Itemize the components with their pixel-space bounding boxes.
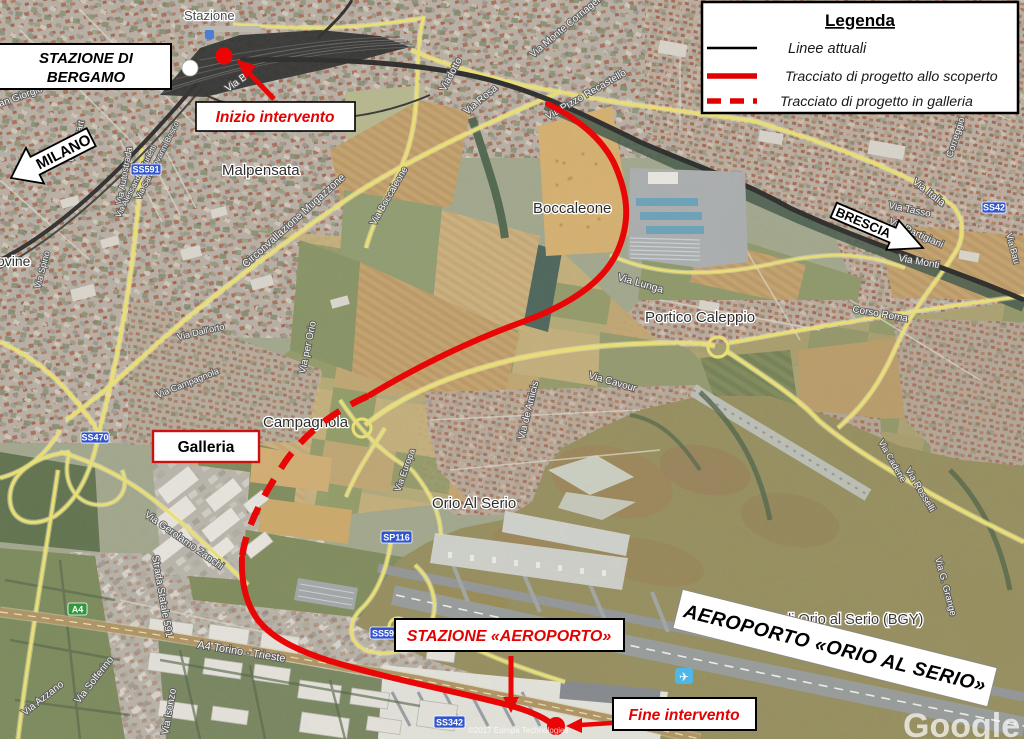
svg-text:Galleria: Galleria bbox=[178, 439, 235, 456]
svg-text:©2017 Europa Technologies: ©2017 Europa Technologies bbox=[468, 726, 569, 735]
svg-text:Tracciato di progetto in galle: Tracciato di progetto in galleria bbox=[780, 94, 973, 110]
svg-text:A4: A4 bbox=[72, 605, 84, 615]
svg-text:✈: ✈ bbox=[679, 670, 689, 684]
svg-text:SS59: SS59 bbox=[372, 629, 394, 639]
svg-text:Orio Al Serio: Orio Al Serio bbox=[432, 495, 516, 512]
svg-text:Fine intervento: Fine intervento bbox=[628, 707, 739, 724]
svg-text:SS591: SS591 bbox=[132, 165, 159, 175]
svg-text:Tracciato di progetto allo sco: Tracciato di progetto allo scoperto bbox=[785, 69, 998, 85]
svg-text:SS42: SS42 bbox=[983, 203, 1005, 213]
svg-text:STAZIONE DI: STAZIONE DI bbox=[39, 50, 134, 67]
svg-text:Inizio intervento: Inizio intervento bbox=[216, 109, 335, 126]
svg-text:Boccaleone: Boccaleone bbox=[533, 200, 611, 217]
svg-text:Malpensata: Malpensata bbox=[222, 162, 300, 179]
svg-text:Legenda: Legenda bbox=[825, 11, 895, 30]
svg-text:BERGAMO: BERGAMO bbox=[47, 69, 126, 86]
svg-text:SS470: SS470 bbox=[81, 433, 108, 443]
svg-text:Portico Caleppio: Portico Caleppio bbox=[645, 309, 755, 326]
svg-text:Stazione: Stazione bbox=[184, 8, 235, 23]
svg-text:Google: Google bbox=[903, 707, 1020, 739]
svg-text:Linee attuali: Linee attuali bbox=[788, 41, 867, 57]
svg-text:STAZIONE «AEROPORTO»: STAZIONE «AEROPORTO» bbox=[407, 628, 612, 645]
svg-text:ovine: ovine bbox=[0, 253, 31, 269]
svg-text:SP116: SP116 bbox=[383, 533, 410, 543]
svg-text:SS342: SS342 bbox=[436, 718, 463, 728]
